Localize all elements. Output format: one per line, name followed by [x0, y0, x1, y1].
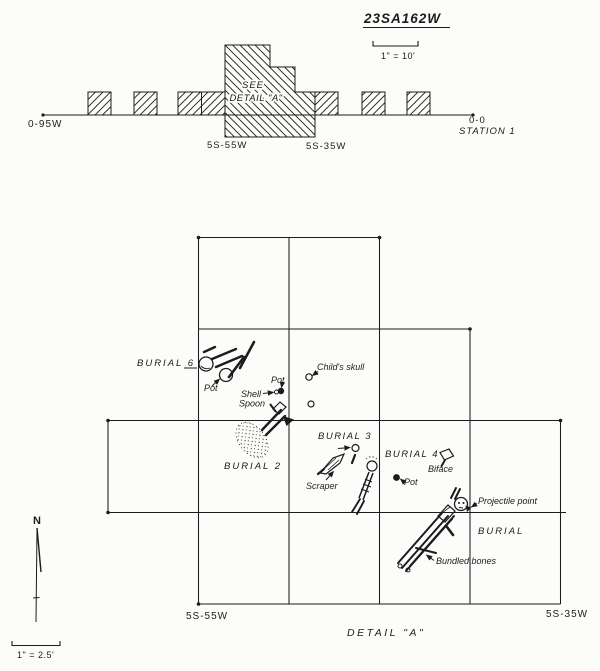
burial-3-marker — [352, 445, 359, 464]
see-detail-text-1: SEE — [242, 80, 264, 91]
small-circle — [308, 401, 314, 407]
label-pot-burial6: Pot — [204, 383, 218, 393]
baseline-west-label: 0-95W — [28, 119, 62, 130]
label-burial-6: BURIAL 6 — [137, 358, 195, 369]
label-bundled-bones: Bundled bones — [436, 556, 497, 566]
skull-mouth — [459, 508, 463, 509]
childs-skull-arrow — [313, 372, 319, 376]
detail-a-plan: BURIAL 6 Pot Pot Shell Spoon Child's sku… — [12, 236, 588, 660]
unit-label-5s35w: 5S-35W — [306, 141, 346, 152]
arrow-feather — [37, 528, 41, 572]
label-burial-4: BURIAL 4 — [385, 449, 439, 460]
see-detail-block — [225, 45, 315, 137]
label-spoon: Spoon — [239, 399, 265, 409]
site-plan-scale-label: 1" = 10' — [381, 51, 415, 61]
skull-circle — [455, 498, 468, 511]
long-bones — [262, 410, 285, 435]
detail-scale-label: 1" = 2.5' — [17, 650, 54, 660]
label-biface: Biface — [428, 464, 453, 474]
shell-spoon-pot-cluster — [275, 388, 285, 394]
detail-scale-bar: 1" = 2.5' — [12, 641, 60, 660]
label-pot-burial4: Pot — [404, 477, 418, 487]
hatched-unit — [315, 92, 338, 115]
label-pot-small: Pot — [271, 375, 285, 385]
detail-corner-5s55w: 5S-55W — [186, 611, 228, 622]
projectile-arrow — [472, 504, 478, 508]
north-label: N — [33, 515, 41, 527]
hatched-unit — [88, 92, 111, 115]
burial-6-drawing — [199, 342, 254, 382]
archaeology-site-figure: 23SA162W 1" = 10' SEE DETAIL "A" 0-95W 0 — [0, 0, 600, 671]
burial-2-drawing — [229, 402, 294, 464]
label-projectile-point: Projectile point — [478, 496, 538, 506]
site-number-title: 23SA162W — [363, 11, 441, 26]
label-childs-skull: Child's skull — [317, 362, 365, 372]
pot-dot — [393, 474, 400, 481]
skull-circle — [367, 461, 377, 471]
burial3-arrow — [338, 448, 350, 449]
detail-caption: DETAIL "A" — [347, 627, 425, 639]
label-burial-2: BURIAL 2 — [224, 461, 282, 472]
site-plan-scale-bar: 1" = 10' — [373, 41, 418, 61]
north-arrow: N — [33, 515, 41, 622]
body-lines — [359, 472, 373, 500]
hatched-unit — [362, 92, 385, 115]
label-burial-3: BURIAL 3 — [318, 431, 372, 442]
baseline-west-end — [41, 113, 44, 116]
burial-4-drawing — [352, 457, 378, 514]
label-scraper: Scraper — [306, 481, 339, 491]
shell-spoon-dot — [275, 390, 279, 394]
see-detail-text-2: DETAIL "A" — [229, 93, 282, 104]
small-rod — [352, 455, 355, 463]
detail-corner-5s35w: 5S-35W — [546, 609, 588, 620]
label-burial-bundled: BURIAL — [478, 526, 524, 537]
childs-skull-circle — [306, 374, 312, 380]
detail-grid — [108, 238, 566, 605]
figure-canvas: 23SA162W 1" = 10' SEE DETAIL "A" 0-95W 0 — [0, 0, 600, 671]
scraper-drawing — [318, 454, 344, 474]
label-shell: Shell — [241, 389, 262, 399]
station-label: STATION 1 — [459, 126, 516, 137]
bundled-bones-leader — [427, 555, 435, 561]
leg-bones — [352, 499, 364, 514]
unit-label-5s55w: 5S-55W — [207, 140, 247, 151]
long-bones — [204, 347, 242, 367]
baseline-origin-label: 0-0 — [469, 115, 486, 126]
shell-spoon-arrow — [263, 392, 274, 393]
site-plan: 23SA162W 1" = 10' SEE DETAIL "A" 0-95W 0 — [28, 11, 516, 152]
hatched-unit — [134, 92, 157, 115]
arrow-tick — [33, 598, 40, 599]
burial-3-circle — [352, 445, 359, 452]
hatched-unit — [407, 92, 430, 115]
